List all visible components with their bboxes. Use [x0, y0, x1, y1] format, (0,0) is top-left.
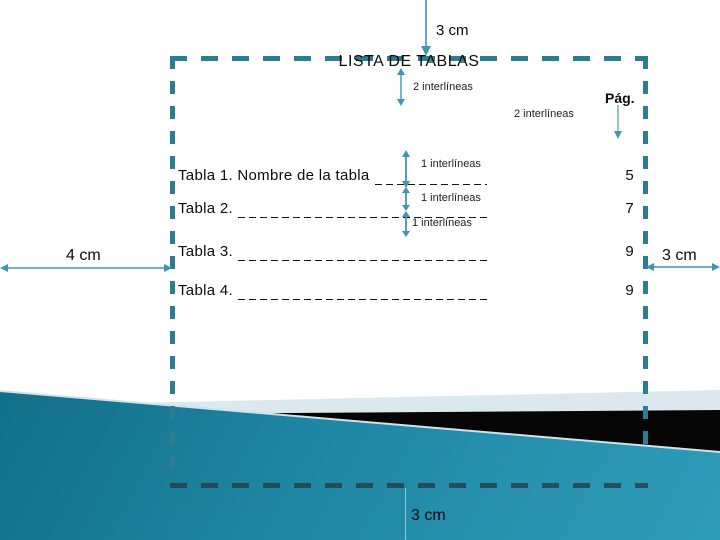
toc-row-3: Tabla 3. 9: [178, 243, 634, 264]
margin-border-bottom: [170, 483, 648, 488]
page-header-spacing-arrow: [611, 105, 625, 139]
toc-page-number: 9: [610, 243, 634, 260]
interline-arrow-1: [399, 150, 413, 188]
toc-page-number: 5: [610, 167, 634, 184]
left-margin-arrow: [0, 261, 172, 275]
toc-page-number: 9: [610, 282, 634, 299]
toc-entry-label: Tabla 2.: [178, 200, 233, 217]
leader-dashes: [375, 184, 487, 185]
toc-page-number: 7: [610, 200, 634, 217]
bottom-margin-tick: [405, 488, 406, 540]
top-margin-arrow: [419, 0, 433, 56]
leader-dashes: [238, 299, 487, 300]
page-title: LISTA DE TABLAS: [170, 53, 648, 71]
interline-arrow-3: [399, 211, 413, 237]
interline-label-1: 1 interlíneas: [421, 158, 481, 170]
interline-arrow-2: [399, 187, 413, 211]
title-spacing-label: 2 interlíneas: [413, 81, 473, 93]
bottom-margin-label: 3 cm: [411, 507, 446, 525]
toc-entry-label: Tabla 4.: [178, 282, 233, 299]
interline-label-2: 1 interlíneas: [421, 192, 481, 204]
right-margin-arrow: [646, 260, 720, 274]
entries-spacing-label: 2 interlíneas: [514, 108, 574, 120]
slide-canvas: Tabla 1. Nombre de la tabla 5 Tabla 2. 7…: [0, 0, 720, 540]
leader-dashes: [238, 260, 487, 261]
toc-entry-label: Tabla 1. Nombre de la tabla: [178, 167, 370, 184]
toc-row-4: Tabla 4. 9: [178, 282, 634, 303]
title-spacing-arrow: [394, 68, 408, 106]
page-column-header: Pág.: [605, 90, 635, 106]
top-margin-label: 3 cm: [436, 22, 469, 39]
toc-entry-label: Tabla 3.: [178, 243, 233, 260]
interline-label-3: 1 interlíneas: [412, 217, 472, 229]
margin-border-right: [643, 56, 648, 447]
